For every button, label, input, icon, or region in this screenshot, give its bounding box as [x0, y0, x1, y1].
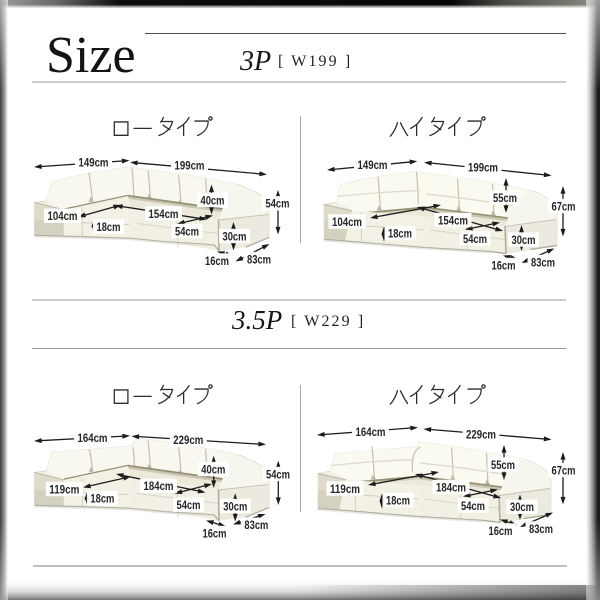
svg-text:[ W229 ]: [ W229 ]	[291, 313, 365, 330]
svg-text:164cm: 164cm	[356, 425, 386, 439]
svg-text:67cm: 67cm	[552, 463, 576, 477]
svg-text:54cm: 54cm	[461, 499, 485, 513]
svg-text:Size: Size	[46, 27, 136, 84]
svg-text:199cm: 199cm	[468, 160, 498, 174]
svg-text:149cm: 149cm	[79, 155, 109, 169]
svg-text:30cm: 30cm	[223, 499, 247, 513]
svg-text:54cm: 54cm	[266, 467, 290, 481]
svg-text:164cm: 164cm	[78, 431, 108, 445]
svg-text:104cm: 104cm	[332, 215, 362, 229]
svg-text:83cm: 83cm	[529, 522, 553, 536]
svg-text:18cm: 18cm	[90, 492, 114, 506]
svg-text:[ W199 ]: [ W199 ]	[278, 53, 352, 70]
svg-text:55cm: 55cm	[491, 458, 515, 472]
svg-text:18cm: 18cm	[97, 220, 121, 234]
svg-text:119cm: 119cm	[49, 482, 79, 496]
svg-text:199cm: 199cm	[175, 159, 205, 173]
svg-text:83cm: 83cm	[531, 255, 555, 269]
svg-text:229cm: 229cm	[173, 433, 203, 447]
svg-text:40cm: 40cm	[201, 193, 225, 207]
svg-text:154cm: 154cm	[438, 213, 468, 227]
svg-text:184cm: 184cm	[144, 479, 174, 493]
svg-text:54cm: 54cm	[463, 232, 487, 246]
svg-text:40cm: 40cm	[201, 462, 225, 476]
svg-text:104cm: 104cm	[48, 209, 78, 223]
svg-text:30cm: 30cm	[512, 233, 536, 247]
svg-text:3P: 3P	[239, 46, 271, 77]
svg-text:16cm: 16cm	[489, 524, 513, 538]
svg-text:83cm: 83cm	[247, 252, 271, 266]
svg-text:54cm: 54cm	[266, 197, 290, 211]
svg-text:30cm: 30cm	[510, 500, 534, 514]
svg-text:18cm: 18cm	[386, 493, 410, 507]
svg-text:54cm: 54cm	[175, 224, 199, 238]
svg-text:154cm: 154cm	[149, 207, 179, 221]
svg-text:119cm: 119cm	[330, 482, 360, 496]
svg-text:55cm: 55cm	[493, 191, 517, 205]
svg-text:16cm: 16cm	[205, 254, 229, 268]
svg-text:16cm: 16cm	[203, 526, 227, 540]
svg-text:229cm: 229cm	[466, 427, 496, 441]
svg-text:83cm: 83cm	[244, 518, 268, 532]
svg-text:149cm: 149cm	[358, 158, 388, 172]
svg-text:184cm: 184cm	[436, 480, 466, 494]
svg-text:54cm: 54cm	[177, 498, 201, 512]
svg-text:3.5P: 3.5P	[231, 305, 282, 335]
svg-text:30cm: 30cm	[223, 229, 247, 243]
svg-text:16cm: 16cm	[492, 258, 516, 272]
svg-text:67cm: 67cm	[552, 199, 576, 213]
svg-text:18cm: 18cm	[388, 226, 412, 240]
